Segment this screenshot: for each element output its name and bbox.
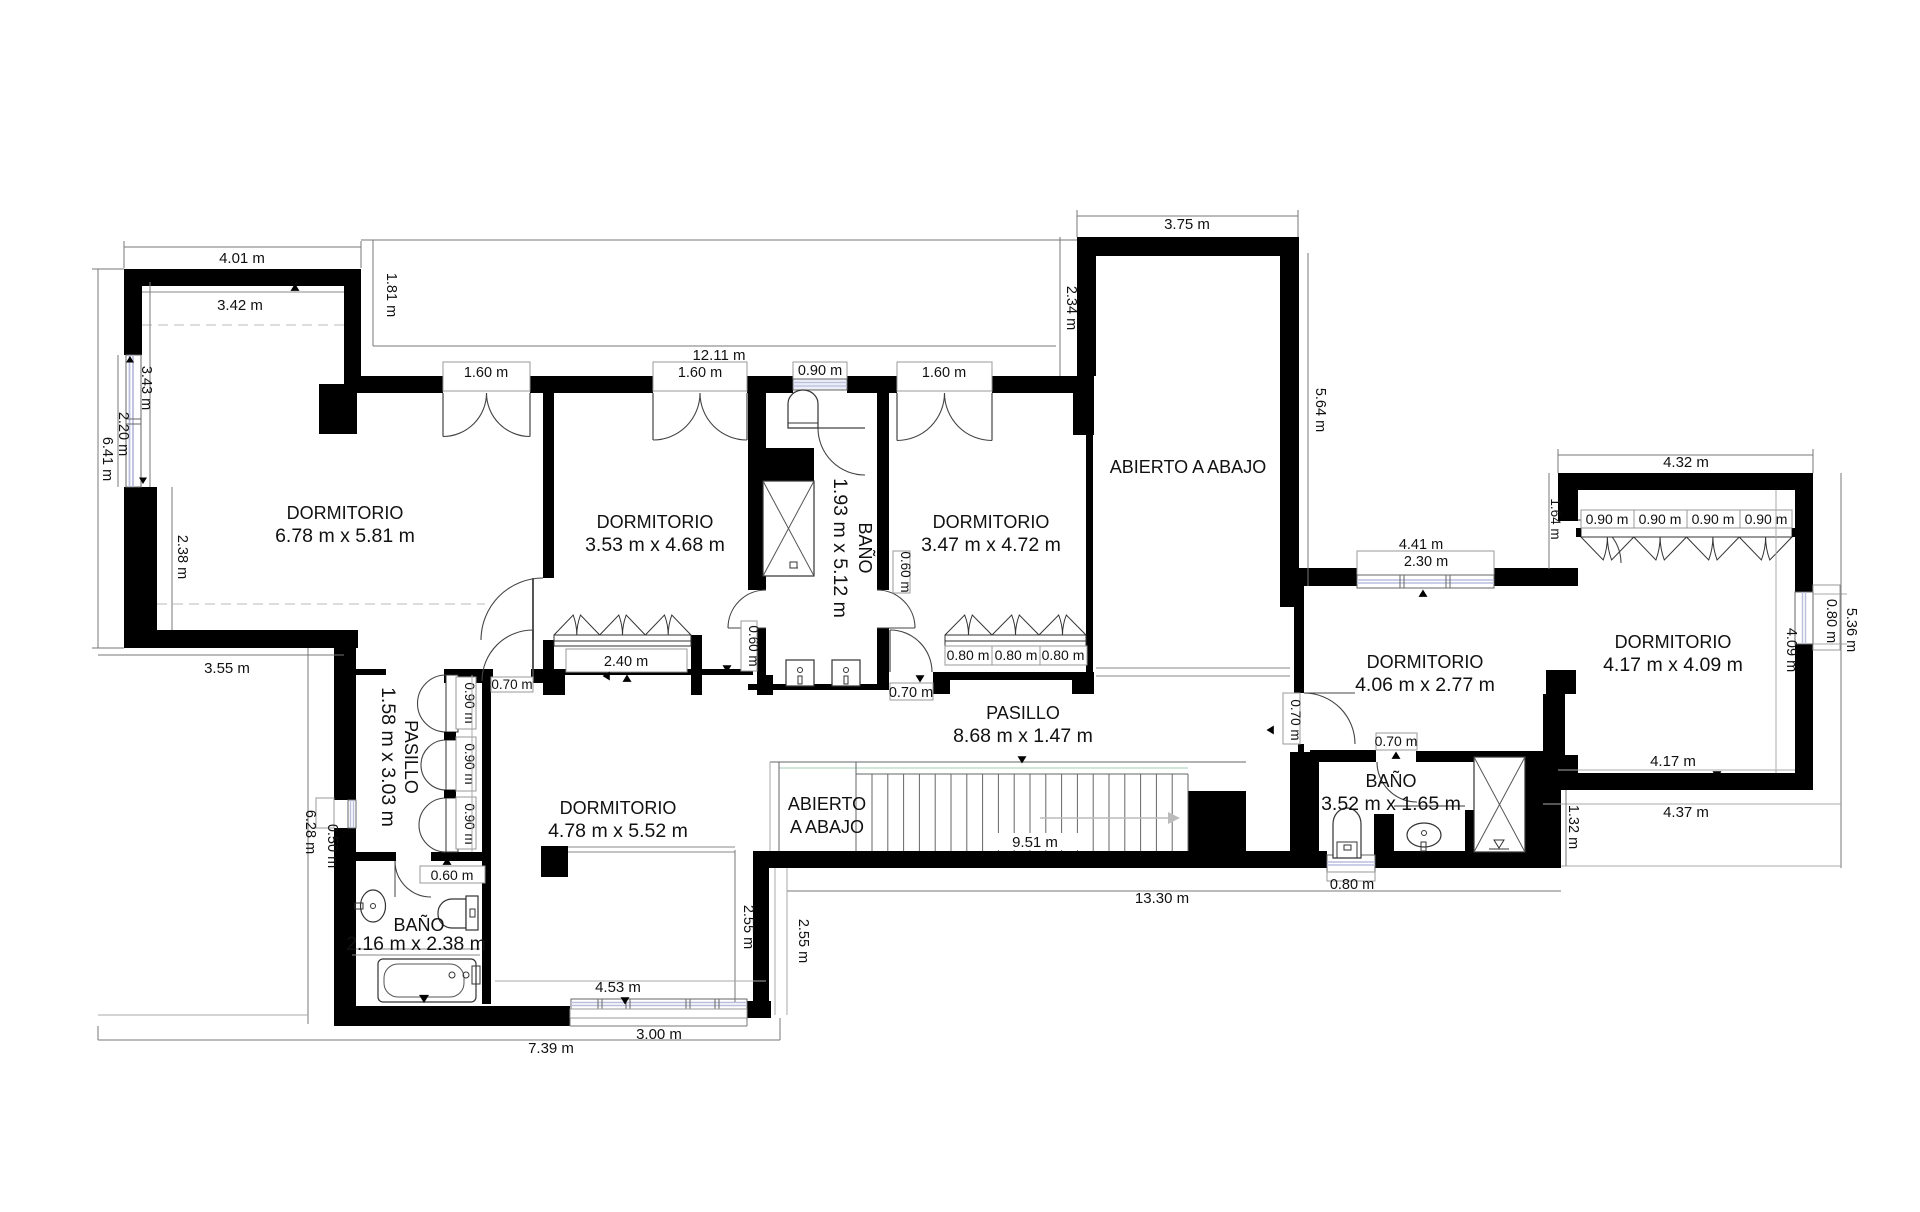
svg-text:BAÑO: BAÑO <box>855 522 876 573</box>
svg-text:A ABAJO: A ABAJO <box>790 817 864 837</box>
svg-text:DORMITORIO: DORMITORIO <box>1615 632 1732 652</box>
svg-text:0.70 m: 0.70 m <box>491 677 532 692</box>
svg-text:13.30 m: 13.30 m <box>1135 890 1189 907</box>
svg-text:6.28 m: 6.28 m <box>302 810 318 854</box>
svg-text:0.90 m: 0.90 m <box>1692 511 1735 527</box>
svg-text:1.60 m: 1.60 m <box>922 365 966 381</box>
svg-text:4.17 m x 4.09 m: 4.17 m x 4.09 m <box>1603 654 1743 676</box>
svg-text:3.75 m: 3.75 m <box>1164 216 1210 233</box>
svg-text:7.39 m: 7.39 m <box>528 1040 574 1057</box>
svg-text:DORMITORIO: DORMITORIO <box>560 798 677 818</box>
svg-text:4.32 m: 4.32 m <box>1663 454 1709 471</box>
svg-text:1.32 m: 1.32 m <box>1565 805 1581 849</box>
svg-text:1.60 m: 1.60 m <box>464 365 508 381</box>
svg-text:2.16 m x 2.38 m: 2.16 m x 2.38 m <box>346 933 486 955</box>
svg-text:2.30 m: 2.30 m <box>1404 554 1448 570</box>
svg-text:9.51 m: 9.51 m <box>1012 834 1058 851</box>
svg-text:0.90 m: 0.90 m <box>462 803 477 844</box>
svg-text:2.40 m: 2.40 m <box>604 654 648 670</box>
svg-text:8.68 m x 1.47 m: 8.68 m x 1.47 m <box>953 725 1093 747</box>
svg-text:4.17 m: 4.17 m <box>1650 753 1696 770</box>
svg-text:0.80 m: 0.80 m <box>995 647 1038 663</box>
svg-text:4.41 m: 4.41 m <box>1399 537 1443 553</box>
svg-text:DORMITORIO: DORMITORIO <box>933 512 1050 532</box>
svg-text:0.90 m: 0.90 m <box>1586 511 1629 527</box>
svg-text:5.64 m: 5.64 m <box>1312 388 1328 432</box>
svg-text:1.81 m: 1.81 m <box>383 273 399 317</box>
svg-text:2.34 m: 2.34 m <box>1063 286 1079 330</box>
svg-text:5.36 m: 5.36 m <box>1843 608 1859 652</box>
svg-text:PASILLO: PASILLO <box>986 703 1060 723</box>
svg-text:3.43 m: 3.43 m <box>138 366 154 410</box>
svg-text:0.80 m: 0.80 m <box>1823 599 1839 643</box>
svg-text:0.70 m: 0.70 m <box>889 685 933 701</box>
svg-text:4.37 m: 4.37 m <box>1663 804 1709 821</box>
svg-text:DORMITORIO: DORMITORIO <box>597 512 714 532</box>
svg-text:PASILLO: PASILLO <box>401 720 421 794</box>
svg-text:BAÑO: BAÑO <box>1365 770 1416 791</box>
svg-text:ABIERTO A ABAJO: ABIERTO A ABAJO <box>1110 457 1266 477</box>
svg-text:1.93 m x 5.12 m: 1.93 m x 5.12 m <box>829 478 851 618</box>
svg-text:4.06 m x 2.77 m: 4.06 m x 2.77 m <box>1355 674 1495 696</box>
svg-text:0.70 m: 0.70 m <box>1288 699 1303 740</box>
svg-text:DORMITORIO: DORMITORIO <box>287 503 404 523</box>
svg-text:3.42 m: 3.42 m <box>217 297 263 314</box>
svg-text:0.50 m: 0.50 m <box>324 824 340 868</box>
svg-text:2.38 m: 2.38 m <box>174 535 190 579</box>
svg-text:0.60 m: 0.60 m <box>431 867 474 883</box>
svg-text:2.20 m: 2.20 m <box>115 412 131 456</box>
svg-text:DORMITORIO: DORMITORIO <box>1367 652 1484 672</box>
svg-text:1.58 m x 3.03 m: 1.58 m x 3.03 m <box>377 687 399 827</box>
svg-text:3.47 m x 4.72 m: 3.47 m x 4.72 m <box>921 534 1061 556</box>
svg-text:0.90 m: 0.90 m <box>462 743 477 784</box>
svg-text:0.70 m: 0.70 m <box>1375 733 1418 749</box>
svg-text:4.01 m: 4.01 m <box>219 250 265 267</box>
svg-text:0.90 m: 0.90 m <box>1745 511 1788 527</box>
svg-text:ABIERTO: ABIERTO <box>788 794 866 814</box>
svg-text:0.90 m: 0.90 m <box>798 363 842 379</box>
svg-text:0.80 m: 0.80 m <box>1042 647 1085 663</box>
svg-text:12.11 m: 12.11 m <box>692 347 745 364</box>
svg-text:4.78 m x 5.52 m: 4.78 m x 5.52 m <box>548 820 688 842</box>
svg-text:6.78 m x 5.81 m: 6.78 m x 5.81 m <box>275 525 415 547</box>
svg-text:1.60 m: 1.60 m <box>678 365 722 381</box>
svg-text:0.80 m: 0.80 m <box>947 647 990 663</box>
svg-text:2.55 m: 2.55 m <box>740 905 756 949</box>
svg-text:6.41 m: 6.41 m <box>99 437 115 481</box>
svg-text:3.53 m x 4.68 m: 3.53 m x 4.68 m <box>585 534 725 556</box>
svg-text:4.09 m: 4.09 m <box>1783 628 1799 672</box>
svg-text:1.64 m: 1.64 m <box>1548 498 1563 539</box>
svg-text:BAÑO: BAÑO <box>393 914 444 935</box>
svg-text:3.55 m: 3.55 m <box>204 660 250 677</box>
svg-text:4.53 m: 4.53 m <box>595 979 641 996</box>
svg-text:0.90 m: 0.90 m <box>1639 511 1682 527</box>
svg-text:2.55 m: 2.55 m <box>795 919 811 963</box>
svg-text:0.60 m: 0.60 m <box>746 625 761 666</box>
svg-text:0.90 m: 0.90 m <box>462 682 477 723</box>
svg-text:3.52 m x 1.65 m: 3.52 m x 1.65 m <box>1321 793 1461 815</box>
svg-text:0.60 m: 0.60 m <box>898 551 913 592</box>
